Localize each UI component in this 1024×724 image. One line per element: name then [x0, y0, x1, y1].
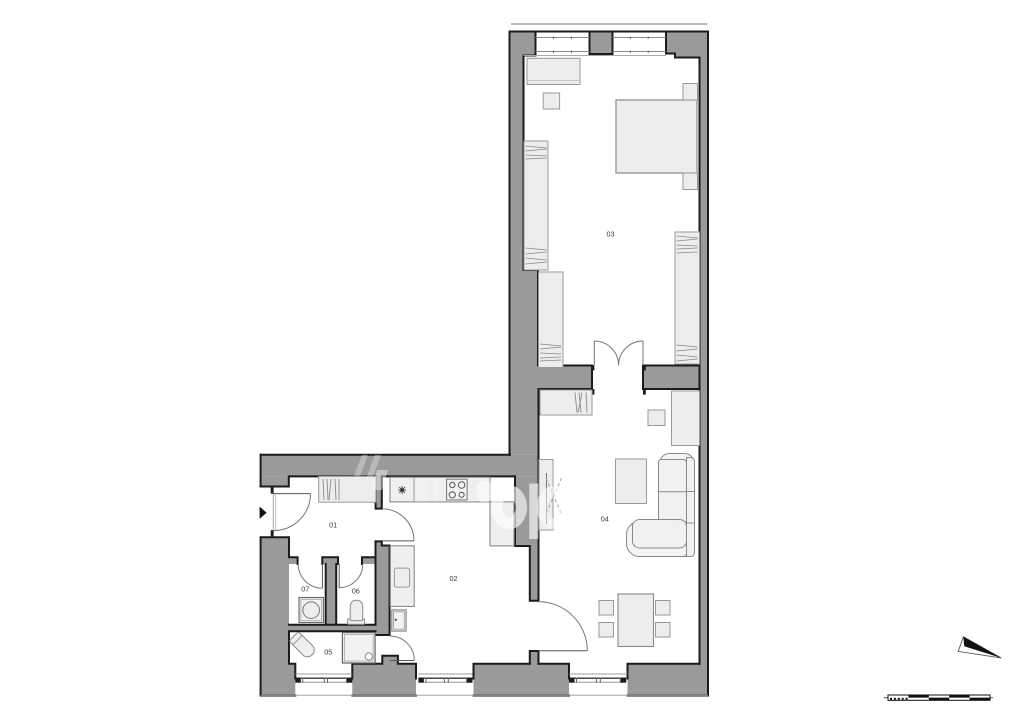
svg-text:01: 01: [329, 520, 337, 529]
svg-text:02: 02: [449, 574, 457, 583]
svg-text:07: 07: [301, 584, 309, 593]
svg-text:06: 06: [352, 586, 360, 595]
svg-text:05: 05: [324, 647, 332, 656]
svg-text:03: 03: [606, 230, 614, 239]
svg-text:04: 04: [601, 514, 609, 523]
